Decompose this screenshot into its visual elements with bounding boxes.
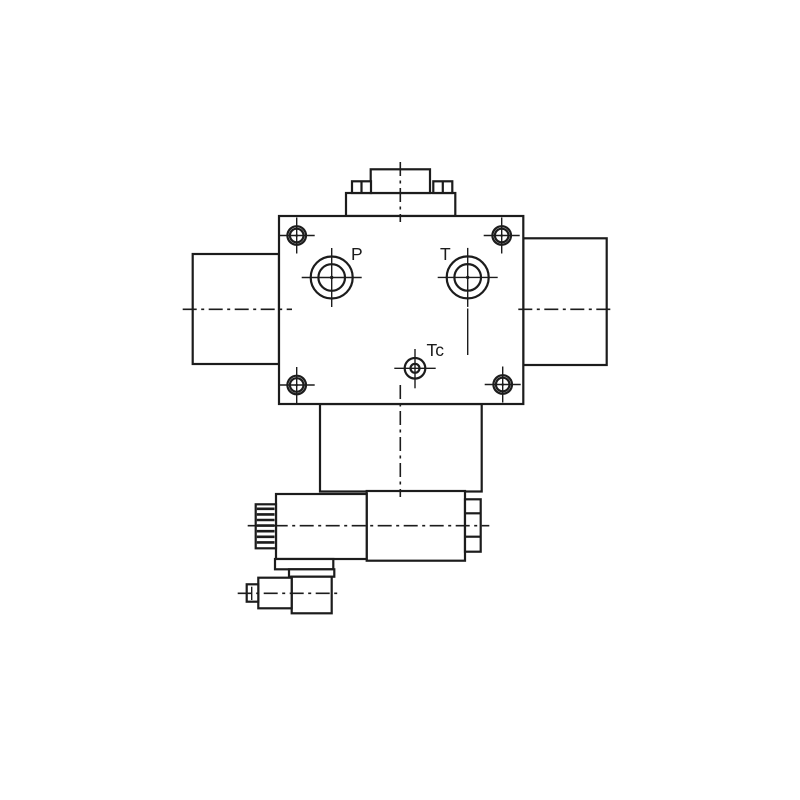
top-flange-left-screw xyxy=(352,181,371,193)
port-p-label: P xyxy=(351,244,363,264)
main-valve-block xyxy=(279,216,523,404)
connector-lip xyxy=(289,569,334,576)
top-flange-right-screw xyxy=(433,181,452,193)
valve-block-technical-drawing: P T Tc xyxy=(0,0,800,800)
right-port-boss xyxy=(523,238,606,365)
port-tc-label: Tc xyxy=(427,340,445,360)
cable-connector-block xyxy=(292,577,332,614)
connector-flange xyxy=(275,559,333,569)
port-t-label: T xyxy=(440,244,451,264)
